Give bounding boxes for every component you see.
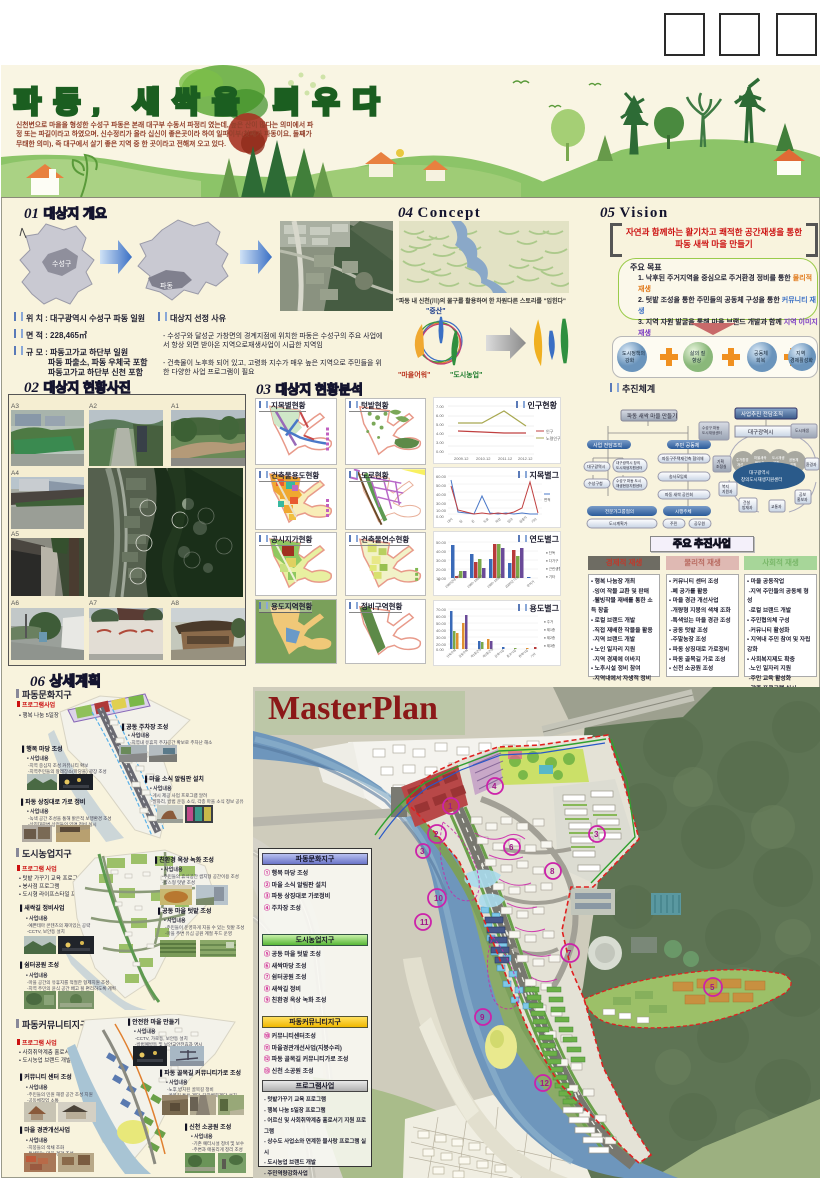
svg-text:건설: 건설 [743,500,750,505]
svg-text:강화: 강화 [625,357,635,364]
svg-text:전문가그룹협의: 전문가그룹협의 [605,508,634,515]
svg-text:삶의 질: 삶의 질 [690,350,706,357]
svg-text:60.00: 60.00 [436,614,447,619]
svg-text:11: 11 [420,918,429,927]
svg-text:도시정책의: 도시정책의 [622,350,645,357]
svg-text:30.00: 30.00 [436,635,447,640]
svg-text:3: 3 [420,847,425,856]
svg-text:파동: 파동 [160,281,173,290]
svg-text:재생현장지원센터: 재생현장지원센터 [616,483,642,488]
svg-text:주민: 주민 [670,520,678,526]
svg-text:50.00: 50.00 [436,540,447,545]
svg-text:파동 새싹 마을 만들기: 파동 새싹 마을 만들기 [627,412,677,420]
svg-text:7: 7 [567,949,572,958]
svg-text:조정실: 조정실 [716,464,727,469]
svg-text:70.00: 70.00 [436,607,447,612]
svg-text:마을새싹: 마을새싹 [754,455,766,460]
svg-text:￭ 근린생활: ￭ 근린생활 [546,566,560,571]
svg-text:2000년 이후: 2000년 이후 [504,574,520,589]
svg-text:지역: 지역 [796,350,805,357]
svg-text:￭ 단독: ￭ 단독 [546,550,556,555]
svg-text:2011.12: 2011.12 [498,456,513,461]
svg-text:5: 5 [710,983,715,992]
svg-text:8: 8 [550,867,555,876]
svg-text:60.00: 60.00 [436,474,447,479]
svg-text:6.00: 6.00 [436,413,445,418]
svg-text:전: 전 [470,518,476,524]
svg-text:공동체: 공동체 [789,457,798,462]
svg-text:회복: 회복 [756,357,766,364]
svg-text:0.00: 0.00 [436,647,445,652]
svg-text:도시재생지원센터: 도시재생지원센터 [616,465,642,470]
svg-text:하천: 하천 [494,516,502,524]
svg-text:3.00: 3.00 [436,440,445,445]
svg-text:노령인구: 노령인구 [546,435,560,441]
svg-text:40.00: 40.00 [436,549,447,554]
svg-text:대구광역시: 대구광역시 [587,463,606,469]
svg-text:공동체: 공동체 [754,350,768,357]
svg-text:4: 4 [492,782,497,791]
svg-text:환경과: 환경과 [806,462,817,467]
svg-text:20.00: 20.00 [436,567,447,572]
svg-text:개선: 개선 [737,462,743,467]
svg-text:10: 10 [434,894,443,903]
svg-text:홍보과: 홍보과 [797,497,808,502]
svg-text:12: 12 [540,1079,549,1088]
svg-text:50.00: 50.00 [436,483,447,488]
svg-text:4.00: 4.00 [436,431,445,436]
svg-text:￭ 제3종: ￭ 제3종 [544,643,556,648]
svg-text:대구광역시: 대구광역시 [749,469,770,476]
svg-text:0.00: 0.00 [436,449,445,454]
svg-text:7.00: 7.00 [436,404,445,409]
svg-text:임야: 임야 [506,516,514,524]
svg-text:50.00: 50.00 [436,621,447,626]
svg-text:1: 1 [448,802,453,811]
svg-text:방재과: 방재과 [742,505,753,510]
svg-text:￭ 주거: ￭ 주거 [544,619,553,624]
svg-text:￭ 제2종: ￭ 제2종 [544,635,556,640]
svg-text:인구: 인구 [546,428,554,434]
svg-text:"중산": "중산" [426,306,446,315]
svg-text:￭ 다가구: ￭ 다가구 [546,558,559,563]
svg-text:공무원: 공무원 [694,520,705,526]
svg-text:파동 새싹 공인회: 파동 새싹 공인회 [665,491,693,497]
svg-text:2: 2 [434,830,439,839]
svg-text:￭ 기타: ￭ 기타 [546,574,556,579]
svg-text:파동구주택재건축 협의체: 파동구주택재건축 협의체 [662,455,704,461]
svg-text:답: 답 [458,518,464,524]
svg-text:수성구 파동 도시: 수성구 파동 도시 [616,478,641,483]
svg-text:주거환경: 주거환경 [736,457,748,462]
svg-text:기획: 기획 [717,459,724,464]
svg-text:공보: 공보 [799,493,806,497]
svg-text:경제활성화: 경제활성화 [790,357,813,364]
svg-text:대구광역시: 대구광역시 [748,428,773,436]
svg-text:주민 공동체: 주민 공동체 [675,442,700,449]
svg-text:사업추진 전담조직: 사업추진 전담조직 [741,410,783,418]
svg-text:도로: 도로 [483,517,490,524]
svg-text:6: 6 [509,843,514,852]
svg-text:2009.12: 2009.12 [454,456,469,461]
svg-text:시행주체: 시행주체 [675,508,692,515]
svg-text:￭ 제1종: ￭ 제1종 [544,627,556,632]
svg-text:지원과: 지원과 [722,489,733,494]
svg-text:복지: 복지 [722,484,729,489]
svg-text:2012.12: 2012.12 [518,456,533,461]
svg-text:수성구청: 수성구청 [588,480,603,486]
svg-text:도시재생: 도시재생 [772,455,784,460]
svg-text:5.00: 5.00 [436,422,445,427]
svg-text:기타: 기타 [530,516,538,524]
svg-text:창의도시재생지원센터: 창의도시재생지원센터 [741,476,782,483]
svg-text:2010.12: 2010.12 [476,456,491,461]
svg-text:9: 9 [480,1013,485,1022]
svg-text:향상: 향상 [692,357,702,364]
svg-text:무허가: 무허가 [525,579,535,589]
svg-text:송사모임회: 송사모임회 [669,473,688,479]
svg-text:기타: 기타 [529,651,537,659]
svg-text:30.00: 30.00 [436,501,447,506]
svg-text:수성구: 수성구 [52,259,72,268]
svg-text:도시재생센터: 도시재생센터 [702,430,722,435]
svg-text:40.00: 40.00 [436,492,447,497]
svg-text:대구광역시 창의: 대구광역시 창의 [616,460,640,465]
svg-text:잡종지: 잡종지 [518,515,528,525]
svg-text:"마을어워": "마을어워" [398,370,430,379]
svg-text:도시재생: 도시재생 [795,428,809,433]
svg-text:30.00: 30.00 [436,558,447,563]
svg-text:사업 전담조직: 사업 전담조직 [593,442,622,449]
svg-text:40.00: 40.00 [436,628,447,633]
svg-text:3: 3 [594,830,599,839]
svg-text:교통과: 교통과 [771,504,782,509]
svg-text:10.00: 10.00 [436,508,447,513]
svg-text:도시계획가: 도시계획가 [609,520,628,526]
svg-text:면적: 면적 [544,497,550,502]
svg-text:수성구 파동: 수성구 파동 [702,425,720,430]
svg-text:0.00: 0.00 [436,514,445,519]
svg-text:"도시농업": "도시농업" [450,370,482,379]
svg-text:대지: 대지 [446,516,454,524]
